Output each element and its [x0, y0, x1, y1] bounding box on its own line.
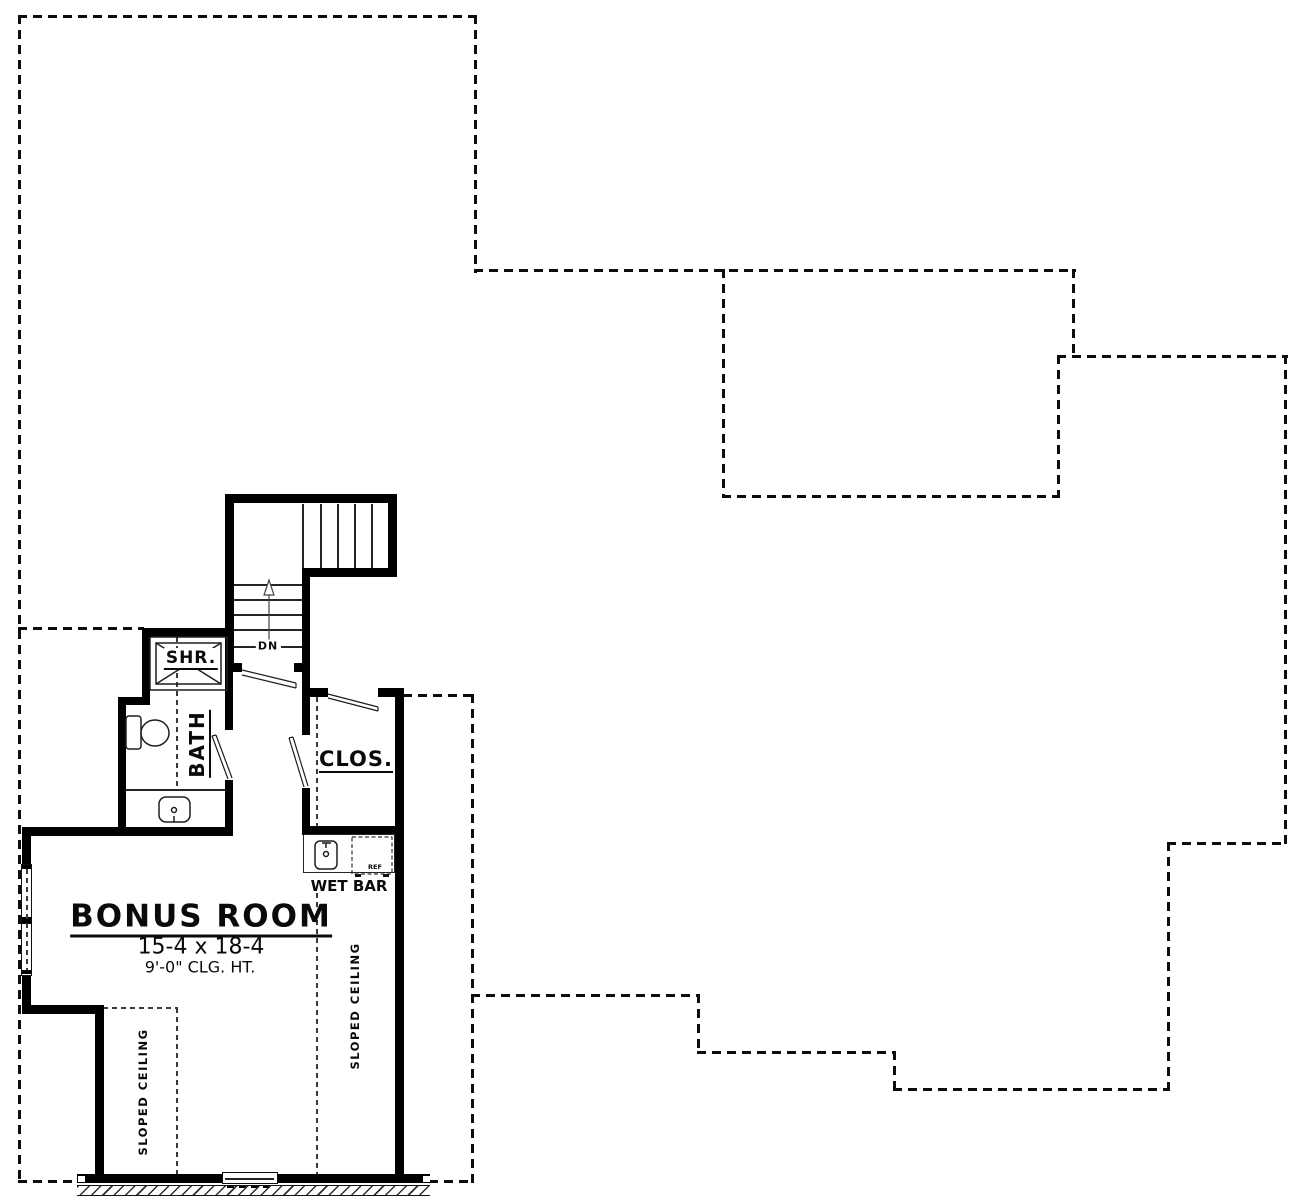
closet-left-door-leaf — [289, 737, 308, 787]
wet-bar-label: WET BAR — [311, 877, 388, 895]
sloped-ceiling-label-left: SLOPED CEILING — [136, 1028, 150, 1155]
floor-plan-canvas: SHR. BATH CLOS. WET BAR BONUS ROOM 15-4 … — [0, 0, 1300, 1203]
bath-sink — [159, 797, 190, 822]
closet-top-door-leaf — [328, 694, 378, 711]
ref-label: REF — [368, 863, 382, 871]
bonus-room-ceiling-height: 9'-0" CLG. HT. — [145, 958, 256, 977]
refrigerator-box — [352, 837, 392, 877]
bonus-room-label: BONUS ROOM — [70, 899, 332, 938]
shower-label: SHR. — [164, 648, 218, 670]
toilet — [126, 716, 169, 749]
closet-label: CLOS. — [319, 747, 393, 773]
dn-label: DN — [256, 640, 280, 653]
bonus-room-dimensions: 15-4 x 18-4 — [138, 935, 265, 960]
fixtures-layer — [0, 0, 1300, 1203]
bath-door-leaf — [212, 735, 232, 779]
wet-bar-sink — [315, 841, 337, 869]
stair-arrow — [264, 580, 274, 642]
bath-label: BATH — [185, 710, 211, 778]
stair-door-leaf — [242, 670, 296, 688]
sloped-ceiling-label-right: SLOPED CEILING — [348, 942, 362, 1069]
